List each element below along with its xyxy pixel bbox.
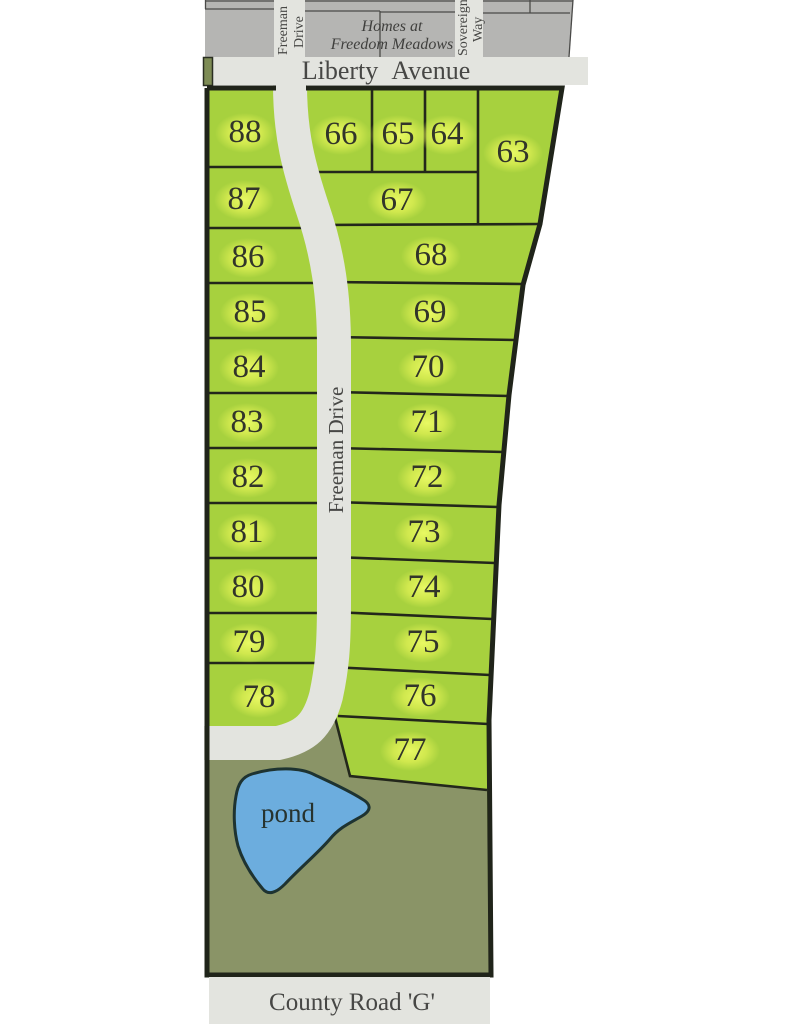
pond-label: pond <box>261 798 316 828</box>
lot-74[interactable]: 74 <box>394 568 454 608</box>
lot-86-number: 86 <box>232 239 265 275</box>
lot-84[interactable]: 84 <box>219 348 279 388</box>
lot-67[interactable]: 67 <box>367 181 427 221</box>
lot-64-number: 64 <box>431 116 464 152</box>
lot-66[interactable]: 66 <box>311 115 371 155</box>
lot-73-number: 73 <box>408 514 441 550</box>
county-road-label: County Road 'G' <box>269 989 435 1016</box>
freeman-drive-mid-label: Freeman Drive <box>324 387 348 514</box>
lot-68-number: 68 <box>415 237 448 273</box>
plat-map-page: Freeman Drive Sovereign Way Homes at Fre… <box>0 0 791 1024</box>
lot-70-number: 70 <box>412 349 445 385</box>
lot-74-number: 74 <box>408 569 441 605</box>
subdivision-name-line2: Freedom Meadows <box>330 36 454 53</box>
lot-67-number: 67 <box>381 182 414 218</box>
lot-71-number: 71 <box>411 404 444 440</box>
lot-77[interactable]: 77 <box>380 731 440 771</box>
lot-77-number: 77 <box>394 732 427 768</box>
lot-76[interactable]: 76 <box>390 677 450 717</box>
lot-81[interactable]: 81 <box>217 513 277 553</box>
lot-88[interactable]: 88 <box>215 113 275 153</box>
lot-76-number: 76 <box>404 678 437 714</box>
lot-78-number: 78 <box>243 679 276 715</box>
lot-73[interactable]: 73 <box>394 513 454 553</box>
liberty-avenue-label: Liberty Avenue <box>302 56 471 85</box>
lot-87[interactable]: 87 <box>214 180 274 220</box>
lot-79-number: 79 <box>233 624 266 660</box>
lot-69-number: 69 <box>414 294 447 330</box>
lot-75[interactable]: 75 <box>393 623 453 663</box>
sovereign-way-label-line1: Sovereign <box>456 0 471 56</box>
lot-81-number: 81 <box>231 514 264 550</box>
lot-75-number: 75 <box>407 624 440 660</box>
lot-82[interactable]: 82 <box>218 458 278 498</box>
lot-85[interactable]: 85 <box>220 293 280 333</box>
subdivision-name-line1: Homes at <box>361 18 423 35</box>
lot-83-number: 83 <box>231 404 264 440</box>
lot-72-number: 72 <box>411 459 444 495</box>
lot-68[interactable]: 68 <box>401 236 461 276</box>
county-road-g: County Road 'G' <box>209 977 490 1024</box>
lot-69[interactable]: 69 <box>400 293 460 333</box>
open-space-sliver <box>204 58 213 86</box>
lot-65[interactable]: 65 <box>368 115 428 155</box>
lot-80[interactable]: 80 <box>218 568 278 608</box>
lot-86[interactable]: 86 <box>218 238 278 278</box>
lot-63-number: 63 <box>497 134 530 170</box>
lot-78[interactable]: 78 <box>229 678 289 718</box>
lot-63[interactable]: 63 <box>483 133 543 173</box>
liberty-avenue: Liberty Avenue <box>204 56 589 86</box>
lot-79[interactable]: 79 <box>219 623 279 663</box>
lot-88-number: 88 <box>229 114 262 150</box>
lot-71[interactable]: 71 <box>397 403 457 443</box>
lot-65-number: 65 <box>382 116 415 152</box>
sovereign-way-label-line2: Way <box>471 17 486 42</box>
plat-map: Freeman Drive Sovereign Way Homes at Fre… <box>0 0 791 1024</box>
lot-83[interactable]: 83 <box>217 403 277 443</box>
lot-87-number: 87 <box>228 181 261 217</box>
lot-72[interactable]: 72 <box>397 458 457 498</box>
lot-82-number: 82 <box>232 459 265 495</box>
lot-84-number: 84 <box>233 349 266 385</box>
lot-66-number: 66 <box>325 116 358 152</box>
freeman-top-label-line1: Freeman <box>276 6 291 55</box>
lot-85-number: 85 <box>234 294 267 330</box>
lot-70[interactable]: 70 <box>398 348 458 388</box>
freeman-top-label-line2: Drive <box>292 16 307 48</box>
lot-80-number: 80 <box>232 569 265 605</box>
